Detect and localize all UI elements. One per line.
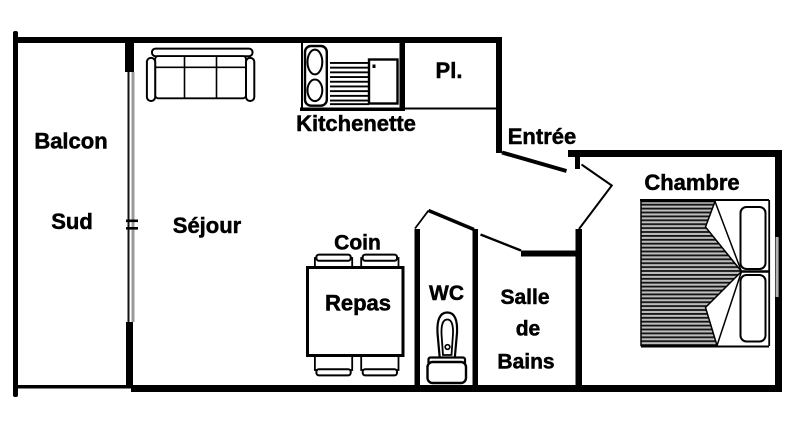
- svg-text:WC: WC: [429, 282, 464, 305]
- svg-text:Balcon: Balcon: [34, 129, 107, 154]
- svg-text:Entrée: Entrée: [508, 124, 576, 149]
- svg-text:Repas: Repas: [325, 291, 391, 316]
- svg-text:Chambre: Chambre: [644, 170, 739, 195]
- svg-text:Pl.: Pl.: [436, 58, 463, 83]
- svg-text:de: de: [516, 318, 541, 341]
- svg-text:Kitchenette: Kitchenette: [296, 111, 416, 136]
- svg-text:Salle: Salle: [500, 286, 549, 309]
- svg-text:Bains: Bains: [497, 351, 554, 374]
- svg-text:Séjour: Séjour: [173, 213, 242, 238]
- svg-text:Coin: Coin: [334, 232, 381, 255]
- svg-text:Sud: Sud: [51, 209, 93, 234]
